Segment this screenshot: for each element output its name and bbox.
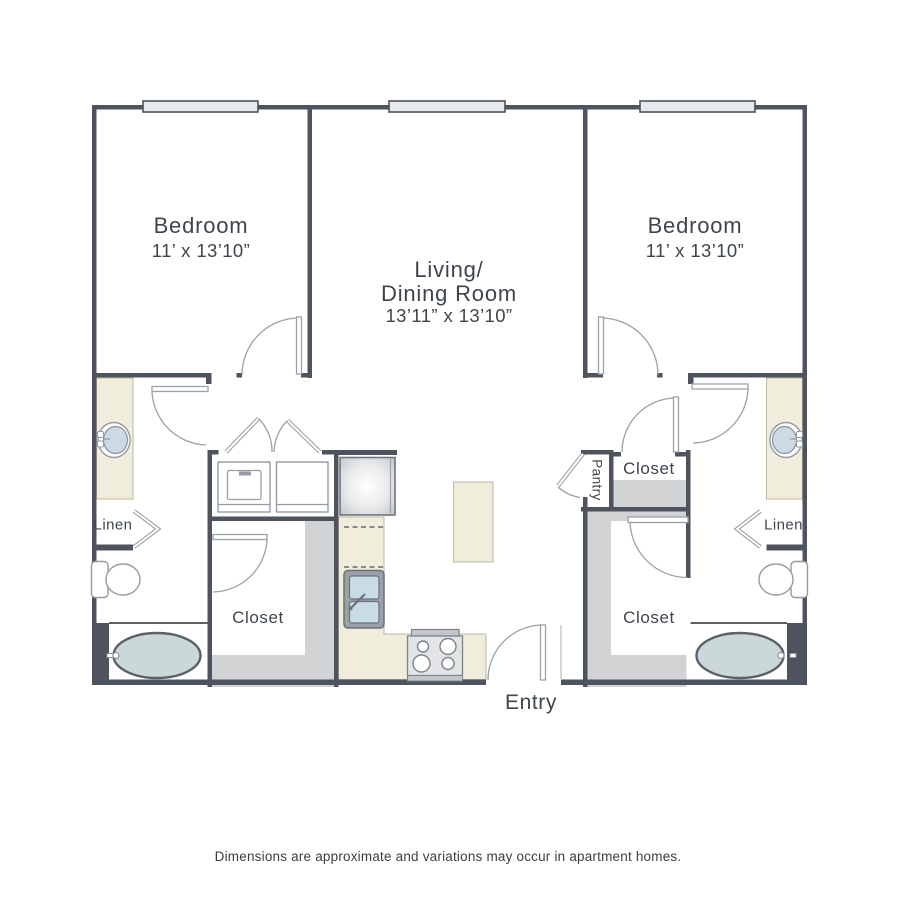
burner [418,641,429,652]
closet-lower-right-label: Closet [623,608,675,627]
vanity-sink-left-basin [104,427,128,454]
entry-label: Entry [505,691,557,714]
kitchen-faucet-base [349,607,353,611]
bifold-door [226,419,259,453]
burner [442,658,454,670]
tub-drain [778,653,784,659]
living-room-label: Living/ [414,257,483,282]
wall-stub [206,373,212,384]
wall-kitchen-left [334,450,339,687]
tub-drain [113,653,119,659]
faucet-knob [797,432,803,438]
pantry-door [558,454,583,486]
door-swing [213,540,267,593]
wall-stub [688,373,694,384]
linen-door-right [737,511,761,547]
door-swing [274,421,288,453]
toilet-bowl-right [759,564,793,595]
door-swing [242,318,299,375]
wall-hall-right [686,450,691,578]
toilet-bowl-left [106,564,140,595]
burner [413,655,430,672]
living-room-dims: 13’11” x 13’10” [385,305,512,326]
door-leaf-bedroom-right [599,317,604,374]
vanity-sink-right-basin [773,427,797,454]
door-swing [601,318,658,375]
door-leaf-closet-upper-right [674,397,679,452]
tub-edge-right [691,622,788,624]
linen-right-label: Linen [764,517,803,534]
faucet-knob [98,432,104,438]
closet-floor-right [588,512,612,688]
wall-pantry-top [581,450,613,455]
faucet-knob [797,441,803,447]
wall-linen-left-bottom [92,545,133,551]
wall-living-bedroom-right [583,105,588,378]
wall-stub [237,373,243,378]
tub-edge-left [109,622,208,624]
door-leaf-closet-left [213,535,267,540]
linen-door-right [737,511,761,547]
kitchen-island [454,482,494,562]
stove-handle [412,630,460,637]
door-swing [152,392,206,446]
door-swing [558,487,580,498]
linen-left-label: Linen [94,517,133,534]
wall-bedroom-left-living [308,105,313,378]
stove-base [408,676,463,682]
linen-door-left [134,511,158,547]
floorplan-canvas: Bedroom 11’ x 13’10” Bedroom 11’ x 13’10… [0,0,900,900]
window [143,101,258,112]
door-leaf-bedroom-left [297,317,302,374]
linen-door-left [134,511,158,547]
door-leaf-bath-right [692,384,748,389]
window [640,101,755,112]
bathtub-left [114,633,201,678]
faucet-knob [98,441,104,447]
wall-pantry-right [609,450,614,512]
wall-stub [611,452,621,457]
bedroom-left-dims: 11’ x 13’10” [152,240,250,261]
wall-pantry-bottom [581,507,691,512]
living-room-label: Dining Room [381,281,517,306]
door-swing [259,419,273,453]
wall-hall-left [208,450,213,687]
door-leaf-entry [541,625,546,680]
door-leaf-closet-right [628,517,688,523]
bathtub-right [697,633,784,678]
door-swing [693,389,748,443]
wall-closet-left-top [208,517,339,522]
wall-stub [208,450,219,455]
door-swing [488,625,541,680]
disclaimer-text: Dimensions are approximate and variation… [215,849,682,864]
wall-linen-right-bottom [767,545,808,551]
window [389,101,505,112]
bedroom-right-dims: 11’ x 13’10” [646,240,744,261]
pantry-label: Pantry [590,459,605,500]
door-leaf-bath-left [152,387,208,392]
exterior-wall-bottom [561,680,807,686]
wall-stub [301,373,312,378]
wall-closet-right-left [583,497,588,687]
bedroom-right-label: Bedroom [648,213,743,238]
wall-bedroom-left-bottom [92,373,211,378]
wall-bedroom-right-bottom [693,373,807,378]
door-swing [630,523,688,578]
closet-lower-left-label: Closet [232,608,284,627]
floorplan-drawing: Bedroom 11’ x 13’10” Bedroom 11’ x 13’10… [0,0,900,900]
washer-handle [239,472,251,476]
wall-tub-right [787,623,803,680]
tub-faucet [790,654,796,658]
wall-above-refrigerator [334,450,397,455]
refrigerator [340,458,395,516]
bifold-door [288,421,321,453]
burner [440,639,456,655]
wall-tub-left [97,623,110,680]
closet-floor-upper-right [613,480,687,507]
tub-faucet [107,654,113,658]
bedroom-left-label: Bedroom [154,213,249,238]
closet-upper-right-label: Closet [623,459,675,478]
door-swing [622,398,676,452]
